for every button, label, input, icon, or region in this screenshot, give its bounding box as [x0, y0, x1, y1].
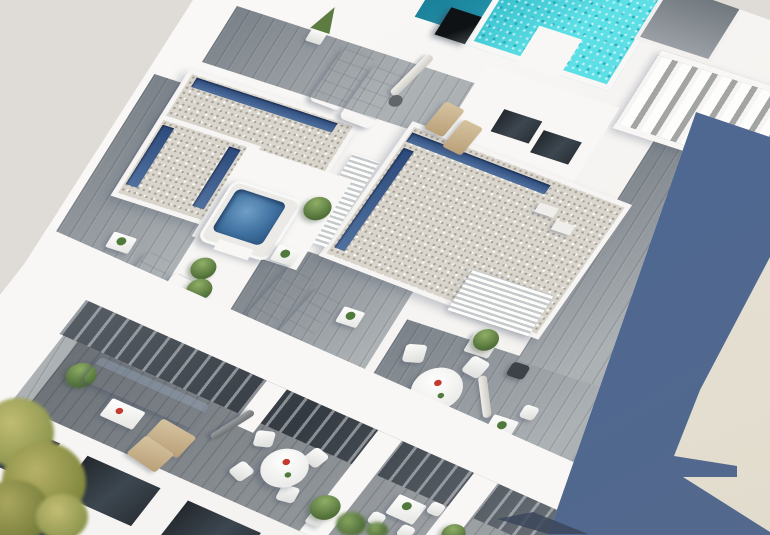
tree-foliage — [36, 494, 88, 535]
shrub — [366, 522, 388, 535]
rooftop-render-scene — [0, 0, 770, 535]
topiary-cone — [310, 4, 344, 34]
shrub — [336, 512, 366, 535]
